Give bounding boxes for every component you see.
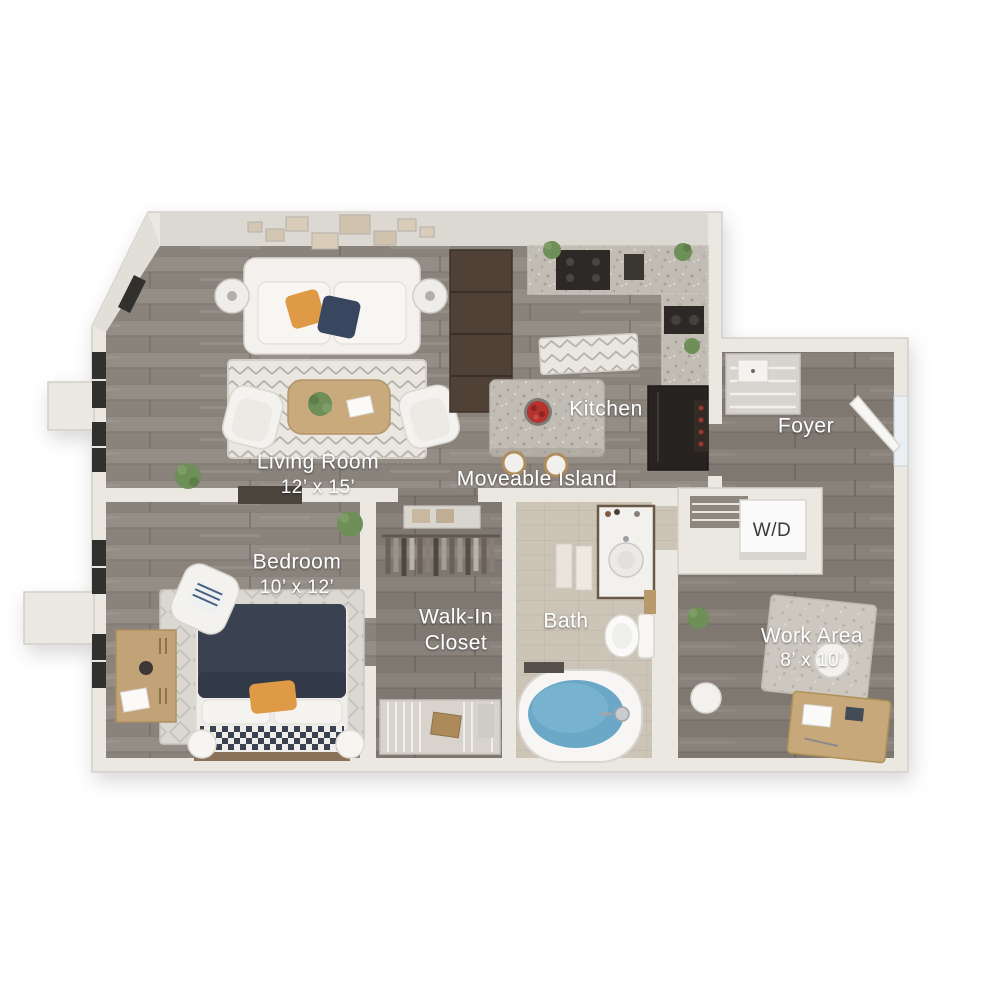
desk-chair [691,683,721,713]
throw-pillow-navy [316,294,361,339]
toilet-icon [605,614,654,658]
papers [120,688,149,712]
houseplant-icon [175,463,201,489]
floor-plan-image: Living Room 12’ x 15’ Kitchen Moveable I… [0,0,1000,1000]
wine-rack-icon [694,400,708,452]
work-area-dimensions: 8’ x 10’ [780,650,844,671]
walk-in-closet-label-line1: Walk-In [419,606,493,629]
window-icon [92,422,106,472]
foyer-kitchen-opening [708,424,722,476]
living-room-dimensions: 12’ x 15’ [281,477,356,498]
houseplant-icon [337,511,363,537]
washer-dryer-label: W/D [753,520,791,541]
floor-plan-rendering: Living Room 12’ x 15’ Kitchen Moveable I… [0,0,1000,1000]
coffee-table [288,380,390,434]
bath-door-opening [652,506,678,550]
tub-faucet-icon [615,707,629,721]
stove-icon [556,250,610,290]
tub-shelf [524,662,564,673]
foot-blanket [200,726,344,750]
shoe-rack [380,700,500,754]
closet-stool [431,712,462,738]
bathtub-icon [518,670,642,762]
vanity [598,506,654,598]
accent-pillow-orange [249,680,298,715]
small-appliance [624,254,644,280]
entry-door-sidelight [894,396,908,466]
exterior-wall-niche [48,382,94,430]
nightstand [188,730,216,758]
floor-lamp-icon [413,279,447,313]
faucet-icon [623,536,629,542]
houseplant-icon [543,241,561,259]
nightstand [336,730,364,758]
kitchen-rug [539,333,639,374]
window-icon [92,634,106,688]
exterior-wall-niche [24,592,94,644]
window-icon [92,352,106,408]
hall-floor [822,488,894,588]
walk-in-closet-label-line2: Closet [425,632,488,655]
dresser-desk [116,630,176,722]
wood-caddy [644,590,656,614]
floor-lamp-icon [215,279,249,313]
living-room-label: Living Room [257,451,379,474]
desk-lamp-icon [139,661,153,675]
headboard [194,752,350,761]
sofa [244,258,420,354]
entry-closet-shelves [726,354,800,414]
bath-label: Bath [543,610,588,633]
laundry-closet [678,488,822,574]
houseplant-icon [684,338,700,354]
cooktop-icon [664,306,704,334]
laptop-icon [802,704,832,727]
houseplant-icon [674,243,692,261]
moveable-island-label: Moveable Island [457,468,617,491]
desk-accessory [845,707,864,722]
window-icon [92,540,106,594]
bedroom-label: Bedroom [253,551,342,574]
houseplant-icon [687,607,709,629]
work-area-label: Work Area [761,625,863,648]
bedroom-dimensions: 10’ x 12’ [260,577,335,598]
houseplant-icon [308,392,332,416]
foyer-label: Foyer [778,415,834,438]
desk [787,691,891,763]
hanging-towel [478,704,494,738]
kitchen-label: Kitchen [569,398,643,421]
